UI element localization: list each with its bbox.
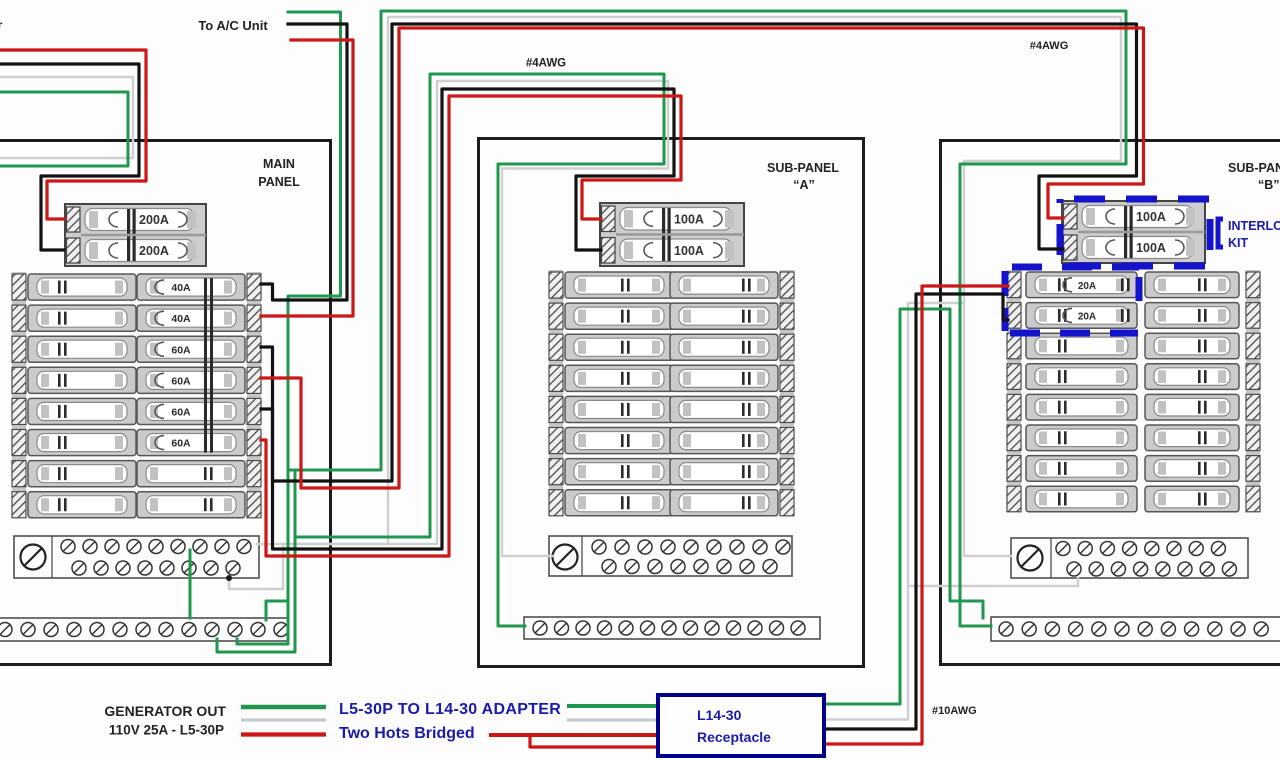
svg-text:60A: 60A — [171, 406, 191, 418]
svg-text:INTERLOCK: INTERLOCK — [1228, 219, 1280, 233]
svg-text:#10AWG: #10AWG — [932, 705, 977, 717]
svg-text:“B”: “B” — [1258, 178, 1280, 192]
svg-text:Two Hots Bridged: Two Hots Bridged — [339, 725, 475, 742]
svg-text:100A: 100A — [1136, 210, 1166, 224]
svg-text:PANEL: PANEL — [258, 175, 300, 189]
svg-text:100A: 100A — [674, 212, 704, 226]
svg-text:20A: 20A — [1078, 281, 1096, 292]
svg-text:110V 25A - L5-30P: 110V 25A - L5-30P — [109, 723, 224, 738]
svg-text:20A: 20A — [1078, 311, 1096, 322]
svg-text:MAIN: MAIN — [263, 157, 295, 171]
svg-text:200A: 200A — [139, 244, 169, 258]
svg-text:#4AWG: #4AWG — [1030, 40, 1069, 52]
svg-text:er: er — [0, 18, 3, 32]
svg-text:100A: 100A — [674, 244, 704, 258]
svg-text:To A/C Unit: To A/C Unit — [198, 18, 268, 33]
svg-text:“A”: “A” — [793, 178, 815, 192]
svg-text:Receptacle: Receptacle — [697, 729, 771, 745]
svg-text:#4AWG: #4AWG — [526, 58, 566, 70]
svg-text:200A: 200A — [139, 213, 169, 227]
svg-text:SUB-PANEL: SUB-PANEL — [1228, 161, 1280, 175]
svg-text:60A: 60A — [171, 344, 191, 356]
svg-text:100A: 100A — [1136, 241, 1166, 255]
svg-text:60A: 60A — [171, 375, 191, 387]
svg-text:KIT: KIT — [1228, 236, 1249, 250]
svg-text:60A: 60A — [171, 438, 191, 450]
svg-text:40A: 40A — [171, 313, 191, 325]
svg-text:GENERATOR OUT: GENERATOR OUT — [104, 703, 226, 719]
svg-text:L5-30P TO L14-30 ADAPTER: L5-30P TO L14-30 ADAPTER — [339, 701, 561, 718]
svg-text:L14-30: L14-30 — [697, 707, 742, 723]
svg-text:SUB-PANEL: SUB-PANEL — [767, 161, 839, 175]
svg-text:40A: 40A — [171, 282, 191, 294]
